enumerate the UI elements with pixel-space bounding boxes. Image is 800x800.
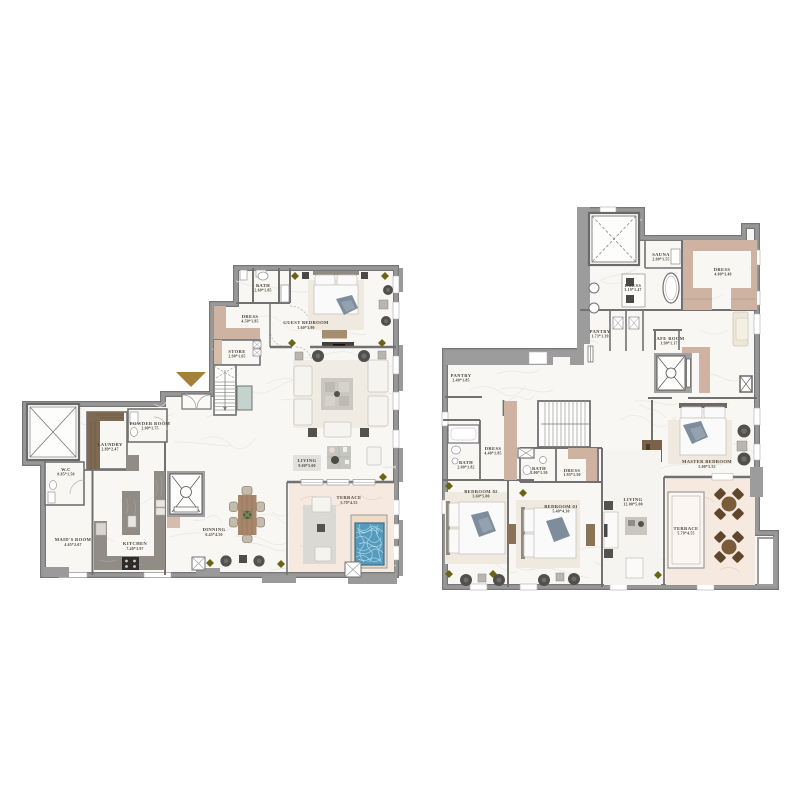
svg-text:3.60*5.00: 3.60*5.00 <box>472 495 489 499</box>
svg-text:2.60*1.85: 2.60*1.85 <box>254 289 271 293</box>
svg-text:3.19*1.47: 3.19*1.47 <box>624 288 641 292</box>
svg-text:BATH: BATH <box>256 283 270 288</box>
svg-text:1.73*1.39: 1.73*1.39 <box>591 334 608 338</box>
svg-text:SAFE ROOM: SAFE ROOM <box>654 336 685 341</box>
svg-text:DRESS: DRESS <box>485 446 502 451</box>
svg-text:BEDROOM 01: BEDROOM 01 <box>544 504 578 509</box>
svg-text:4.65*2.67: 4.65*2.67 <box>64 543 81 547</box>
svg-text:4.50*1.85: 4.50*1.85 <box>241 320 258 324</box>
svg-text:2.00*1.55: 2.00*1.55 <box>652 258 669 262</box>
svg-text:BATH: BATH <box>459 460 473 465</box>
svg-text:9.00*5.00: 9.00*5.00 <box>298 464 315 468</box>
svg-text:2.00*1.82: 2.00*1.82 <box>457 465 474 469</box>
svg-text:MASTER BEDROOM: MASTER BEDROOM <box>682 459 732 464</box>
svg-text:5.70*4.55: 5.70*4.55 <box>340 501 357 505</box>
svg-text:DINNING: DINNING <box>203 527 226 532</box>
svg-text:STORE: STORE <box>228 349 245 354</box>
svg-text:PANTRY: PANTRY <box>590 329 611 334</box>
svg-text:5.00*5.55: 5.00*5.55 <box>698 465 715 469</box>
svg-text:LIVING: LIVING <box>298 458 317 463</box>
svg-text:BEDROOM 02: BEDROOM 02 <box>464 489 498 494</box>
svg-text:GUEST BEDROOM: GUEST BEDROOM <box>283 320 329 325</box>
svg-text:1.93*1.50: 1.93*1.50 <box>563 473 580 477</box>
svg-text:7.40*3.97: 7.40*3.97 <box>126 547 143 551</box>
svg-text:4.40*1.85: 4.40*1.85 <box>484 451 501 455</box>
svg-text:PANTRY: PANTRY <box>451 373 472 378</box>
svg-text:TERRACE: TERRACE <box>674 526 699 531</box>
svg-text:DRESS: DRESS <box>242 314 259 319</box>
svg-text:DRESS: DRESS <box>714 267 731 272</box>
svg-text:5.40*4.30: 5.40*4.30 <box>552 510 569 514</box>
svg-text:MAID'S ROOM: MAID'S ROOM <box>55 537 92 542</box>
svg-text:3.60*3.90: 3.60*3.90 <box>297 326 314 330</box>
svg-text:1.90*1.17: 1.90*1.17 <box>660 341 677 345</box>
svg-text:12.00*5.00: 12.00*5.00 <box>623 503 643 507</box>
svg-text:2.00*1.75: 2.00*1.75 <box>141 427 158 431</box>
svg-text:2.90*1.65: 2.90*1.65 <box>228 355 245 359</box>
svg-text:2.00*1.50: 2.00*1.50 <box>530 471 547 475</box>
svg-text:TERRACE: TERRACE <box>337 495 362 500</box>
svg-text:6.45*4.50: 6.45*4.50 <box>205 533 222 537</box>
svg-text:4.00*3.49: 4.00*3.49 <box>714 273 731 277</box>
svg-text:KITCHEN: KITCHEN <box>123 541 147 546</box>
svg-text:LAUNDRY: LAUNDRY <box>97 442 123 447</box>
svg-text:LIVING: LIVING <box>624 497 643 502</box>
svg-text:2.89*2.47: 2.89*2.47 <box>101 448 118 452</box>
svg-text:W.C: W.C <box>61 467 71 472</box>
svg-text:SAUNA: SAUNA <box>652 252 670 257</box>
svg-text:0.85*1.50: 0.85*1.50 <box>57 472 74 476</box>
svg-text:5.70*4.55: 5.70*4.55 <box>677 532 694 536</box>
svg-text:2.40*1.85: 2.40*1.85 <box>452 379 469 383</box>
